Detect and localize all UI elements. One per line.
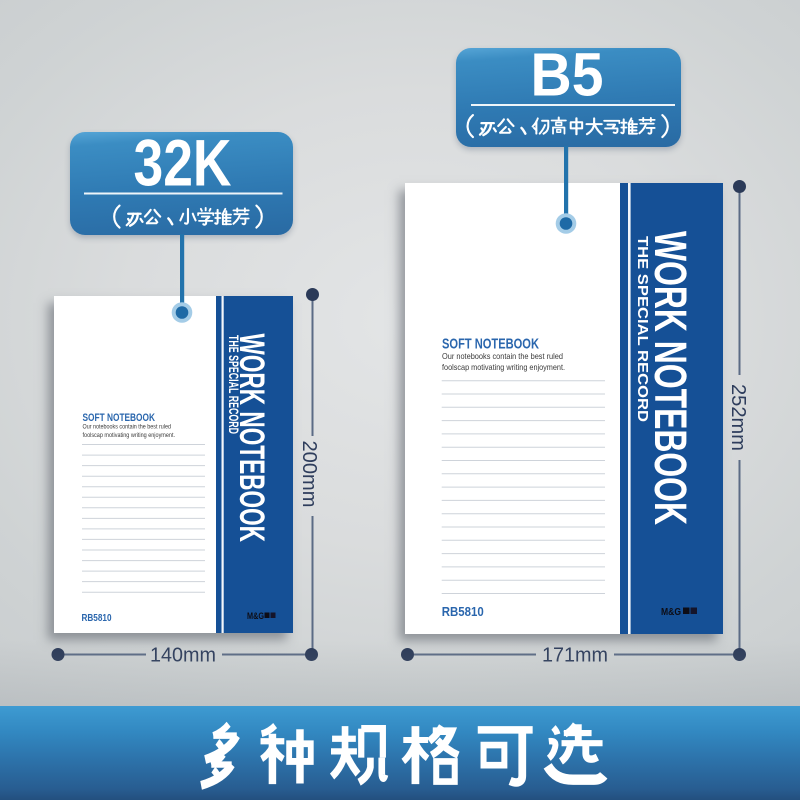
svg-text:200mm: 200mm xyxy=(298,441,320,508)
svg-text:252mm: 252mm xyxy=(727,384,749,451)
